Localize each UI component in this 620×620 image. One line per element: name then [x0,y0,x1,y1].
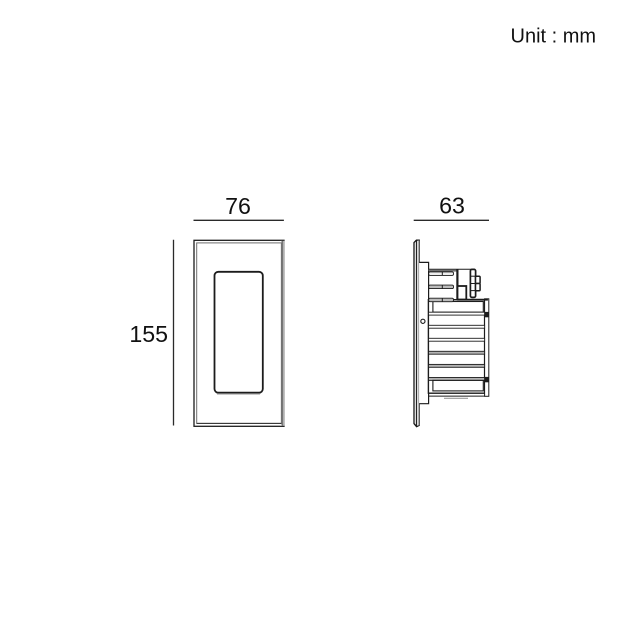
svg-text:63: 63 [439,193,465,219]
svg-text:76: 76 [225,193,251,219]
svg-text:155: 155 [129,321,168,347]
svg-text:Unit : mm: Unit : mm [511,26,597,48]
